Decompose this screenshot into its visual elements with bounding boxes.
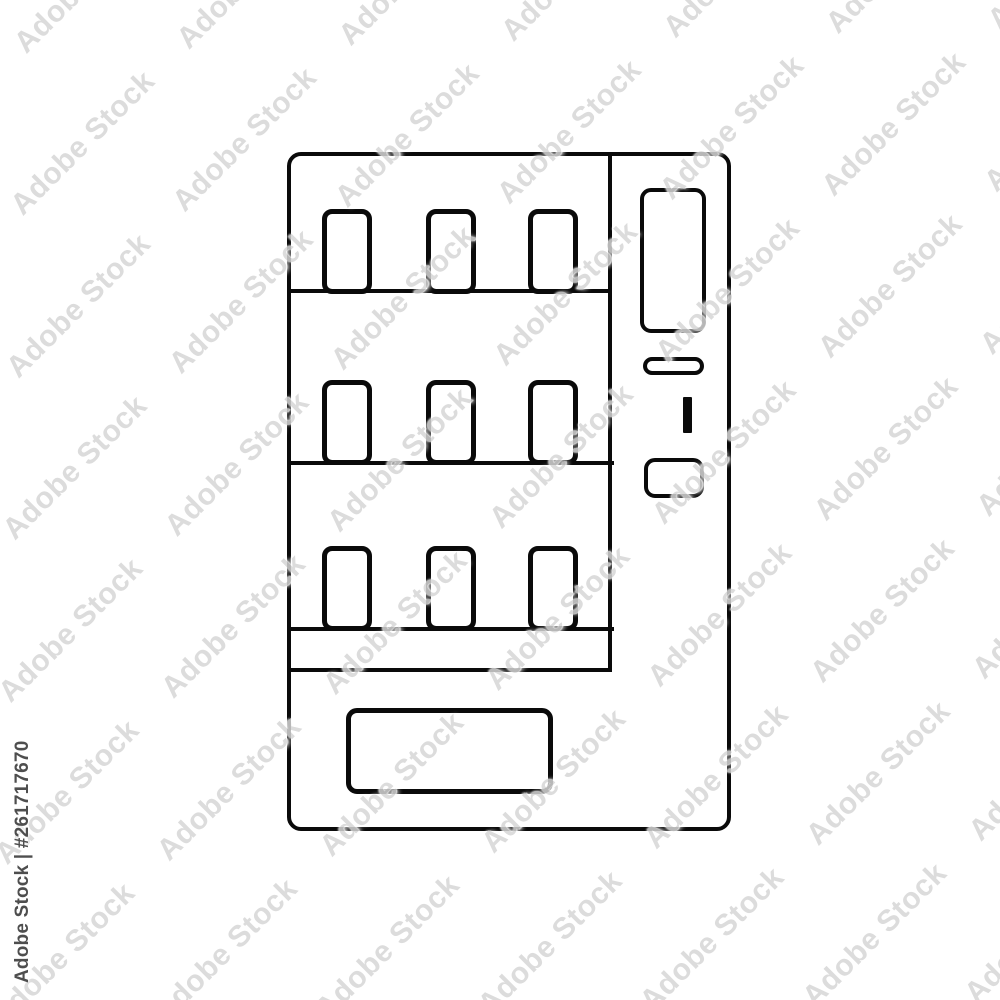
product-bottle-r2-c3	[528, 380, 578, 465]
product-grid	[0, 0, 1000, 1000]
vending-machine-illustration: Adobe StockAdobe StockAdobe StockAdobe S…	[0, 0, 1000, 1000]
product-bottle-r1-c3	[528, 209, 578, 294]
coin-return-door	[644, 458, 704, 498]
product-bottle-r3-c3	[528, 546, 578, 631]
pickup-tray	[346, 708, 553, 794]
product-bottle-r2-c1	[322, 380, 372, 465]
product-bottle-r2-c2	[426, 380, 476, 465]
coin-slot	[643, 357, 704, 375]
product-bottle-r3-c1	[322, 546, 372, 631]
product-bottle-r3-c2	[426, 546, 476, 631]
stock-credit-text: Adobe Stock | #261717670	[12, 741, 34, 983]
selection-display	[640, 188, 706, 333]
product-bottle-r1-c2	[426, 209, 476, 294]
bill-slot	[683, 397, 692, 433]
product-bottle-r1-c1	[322, 209, 372, 294]
